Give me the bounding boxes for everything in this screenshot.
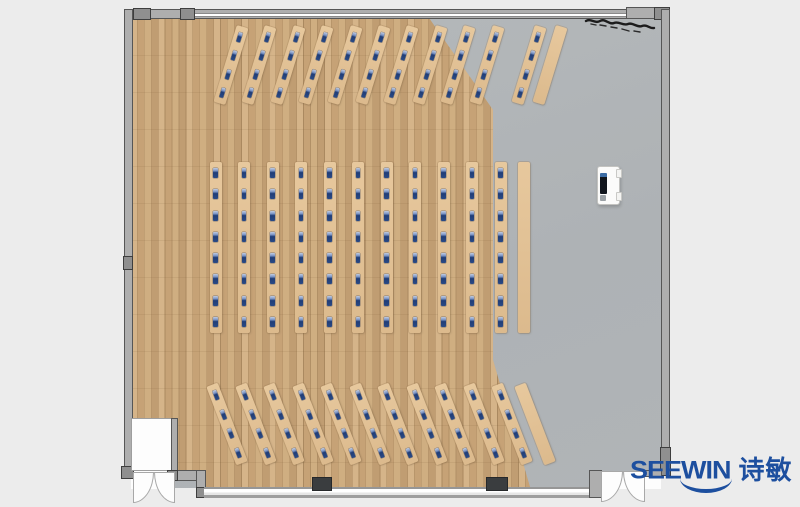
seat-indicator	[398, 428, 406, 439]
seat-indicator	[470, 168, 475, 178]
seat-indicator	[423, 69, 430, 80]
seat-indicator	[224, 69, 231, 80]
seat-indicator	[463, 32, 470, 43]
seat-indicator	[356, 253, 361, 263]
seat-indicator	[270, 168, 275, 178]
middle-straight-rows-desk	[238, 162, 250, 333]
lectern-screen	[600, 173, 607, 194]
seat-indicator	[413, 253, 418, 263]
seat-indicator	[384, 253, 389, 263]
seat-indicator	[441, 253, 446, 263]
seat-indicator	[327, 317, 332, 327]
seat-indicator	[338, 69, 345, 80]
middle-straight-rows-desk	[518, 162, 530, 333]
seat-indicator	[270, 253, 275, 263]
seat-indicator	[447, 409, 455, 420]
seat-indicator	[441, 211, 446, 221]
seat-indicator	[429, 50, 436, 61]
seat-indicator	[406, 32, 413, 43]
seat-indicator	[299, 274, 304, 284]
seat-indicator	[299, 296, 304, 306]
seat-indicator	[326, 390, 334, 401]
seat-indicator	[390, 409, 398, 420]
seat-indicator	[376, 448, 384, 459]
seat-indicator	[462, 448, 470, 459]
seat-indicator	[441, 232, 446, 242]
seat-indicator	[451, 69, 458, 80]
brand-watermark: SEEWIN诗敏	[630, 450, 793, 487]
seat-indicator	[498, 317, 503, 327]
seat-indicator	[270, 296, 275, 306]
seat-indicator	[413, 211, 418, 221]
seat-indicator	[299, 317, 304, 327]
seat-indicator	[519, 448, 527, 459]
seat-indicator	[242, 232, 247, 242]
seat-indicator	[284, 428, 292, 439]
middle-straight-rows-desk	[438, 162, 450, 333]
seat-indicator	[517, 87, 524, 98]
seat-indicator	[262, 448, 270, 459]
seat-indicator	[247, 87, 254, 98]
seat-indicator	[356, 317, 361, 327]
seat-indicator	[213, 232, 218, 242]
seat-indicator	[486, 50, 493, 61]
seat-indicator	[441, 317, 446, 327]
seat-indicator	[213, 211, 218, 221]
seat-indicator	[435, 32, 442, 43]
seat-indicator	[470, 189, 475, 199]
seat-indicator	[483, 428, 491, 439]
seat-indicator	[219, 87, 226, 98]
seat-indicator	[433, 448, 441, 459]
seat-indicator	[383, 390, 391, 401]
plant-scribble-icon	[583, 15, 657, 33]
seat-indicator	[270, 232, 275, 242]
middle-straight-rows-desk	[495, 162, 507, 333]
seat-indicator	[258, 50, 265, 61]
seat-indicator	[356, 274, 361, 284]
seat-indicator	[498, 296, 503, 306]
seat-indicator	[498, 211, 503, 221]
seat-indicator	[384, 232, 389, 242]
seat-indicator	[354, 390, 362, 401]
seat-indicator	[470, 317, 475, 327]
seat-indicator	[327, 168, 332, 178]
seat-indicator	[405, 448, 413, 459]
vestibule-wall	[171, 418, 178, 472]
seat-indicator	[299, 211, 304, 221]
seat-indicator	[512, 428, 520, 439]
middle-straight-rows-desk	[295, 162, 307, 333]
seat-indicator	[378, 32, 385, 43]
brand-name-cn: 诗敏	[739, 450, 793, 487]
seat-indicator	[498, 232, 503, 242]
middle-straight-rows-desk	[210, 162, 222, 333]
lectern-handle	[616, 192, 622, 201]
seat-indicator	[264, 32, 271, 43]
seat-indicator	[468, 390, 476, 401]
seat-indicator	[270, 211, 275, 221]
seat-indicator	[348, 448, 356, 459]
seat-indicator	[327, 232, 332, 242]
seat-indicator	[480, 69, 487, 80]
seat-indicator	[470, 274, 475, 284]
seat-indicator	[504, 409, 512, 420]
seat-indicator	[341, 428, 349, 439]
seat-indicator	[470, 232, 475, 242]
seat-indicator	[269, 390, 277, 401]
seat-indicator	[446, 87, 453, 98]
pillar	[312, 477, 332, 491]
lectern-handle	[616, 169, 622, 178]
seat-indicator	[356, 211, 361, 221]
wall-right	[661, 9, 670, 476]
seat-indicator	[394, 69, 401, 80]
seat-indicator	[327, 296, 332, 306]
wall-joint-top-mid	[180, 8, 195, 20]
seat-indicator	[384, 168, 389, 178]
seat-indicator	[242, 296, 247, 306]
seat-indicator	[242, 211, 247, 221]
seat-indicator	[475, 87, 482, 98]
seat-indicator	[441, 274, 446, 284]
seat-indicator	[498, 168, 503, 178]
seat-indicator	[299, 168, 304, 178]
middle-straight-rows-desk	[267, 162, 279, 333]
lectern-tray	[600, 195, 606, 201]
seat-indicator	[327, 189, 332, 199]
seat-indicator	[413, 296, 418, 306]
seat-indicator	[219, 409, 227, 420]
seat-indicator	[384, 189, 389, 199]
seat-indicator	[455, 428, 463, 439]
seat-indicator	[356, 168, 361, 178]
door-leaf	[154, 472, 175, 503]
seat-indicator	[384, 274, 389, 284]
seat-indicator	[281, 69, 288, 80]
seat-indicator	[384, 296, 389, 306]
door-leaf	[133, 472, 154, 503]
seat-indicator	[470, 253, 475, 263]
seat-indicator	[470, 296, 475, 306]
seat-indicator	[242, 274, 247, 284]
seat-indicator	[522, 69, 529, 80]
seat-indicator	[315, 50, 322, 61]
seat-indicator	[356, 296, 361, 306]
seat-indicator	[327, 274, 332, 284]
seat-indicator	[356, 232, 361, 242]
seat-indicator	[270, 317, 275, 327]
seat-indicator	[369, 428, 377, 439]
seat-indicator	[441, 296, 446, 306]
seat-indicator	[498, 274, 503, 284]
wall-joint-top-left	[133, 8, 151, 20]
seat-indicator	[534, 32, 541, 43]
seat-indicator	[236, 32, 243, 43]
wall-joint-left	[123, 256, 133, 270]
seat-indicator	[299, 189, 304, 199]
middle-straight-rows-desk	[381, 162, 393, 333]
seat-indicator	[213, 317, 218, 327]
seat-indicator	[327, 211, 332, 221]
seat-indicator	[498, 253, 503, 263]
seat-indicator	[213, 168, 218, 178]
seat-indicator	[492, 32, 499, 43]
seat-indicator	[389, 87, 396, 98]
seat-indicator	[248, 409, 256, 420]
seat-indicator	[212, 390, 220, 401]
seat-indicator	[321, 32, 328, 43]
seat-indicator	[270, 189, 275, 199]
seat-indicator	[426, 428, 434, 439]
seat-indicator	[356, 189, 361, 199]
wall-left	[124, 9, 133, 473]
pillar	[486, 477, 508, 491]
seat-indicator	[384, 317, 389, 327]
seat-indicator	[299, 232, 304, 242]
seat-indicator	[457, 50, 464, 61]
seat-indicator	[413, 317, 418, 327]
seat-indicator	[441, 189, 446, 199]
seat-indicator	[411, 390, 419, 401]
seat-indicator	[528, 50, 535, 61]
seat-indicator	[327, 253, 332, 263]
seat-indicator	[304, 87, 311, 98]
seat-indicator	[361, 87, 368, 98]
seat-indicator	[319, 448, 327, 459]
seat-indicator	[312, 428, 320, 439]
seat-indicator	[230, 50, 237, 61]
middle-straight-rows-desk	[352, 162, 364, 333]
seat-indicator	[490, 448, 498, 459]
window-wall-bottom	[204, 487, 596, 498]
seat-indicator	[413, 168, 418, 178]
brand-swoosh-icon	[680, 477, 732, 493]
seat-indicator	[213, 253, 218, 263]
seat-indicator	[413, 274, 418, 284]
seat-indicator	[384, 211, 389, 221]
middle-straight-rows-desk	[324, 162, 336, 333]
seat-indicator	[252, 69, 259, 80]
seat-indicator	[309, 69, 316, 80]
seat-indicator	[305, 409, 313, 420]
seat-indicator	[419, 409, 427, 420]
seat-indicator	[213, 296, 218, 306]
seat-indicator	[344, 50, 351, 61]
seat-indicator	[418, 87, 425, 98]
seat-indicator	[333, 409, 341, 420]
seat-indicator	[413, 189, 418, 199]
seat-indicator	[470, 211, 475, 221]
floor-plan: SEEWIN诗敏	[0, 0, 800, 507]
seat-indicator	[350, 32, 357, 43]
seat-indicator	[291, 448, 299, 459]
seat-indicator	[276, 87, 283, 98]
seat-indicator	[372, 50, 379, 61]
seat-indicator	[498, 189, 503, 199]
seat-indicator	[400, 50, 407, 61]
seat-indicator	[255, 428, 263, 439]
middle-straight-rows-desk	[466, 162, 478, 333]
lectern	[597, 166, 620, 205]
seat-indicator	[227, 428, 235, 439]
seat-indicator	[240, 390, 248, 401]
seat-indicator	[497, 390, 505, 401]
middle-straight-rows-desk	[409, 162, 421, 333]
seat-indicator	[270, 274, 275, 284]
seat-indicator	[242, 253, 247, 263]
seat-indicator	[362, 409, 370, 420]
seat-indicator	[366, 69, 373, 80]
seat-indicator	[297, 390, 305, 401]
seat-indicator	[440, 390, 448, 401]
seat-indicator	[413, 232, 418, 242]
entry-vestibule	[131, 418, 175, 471]
seat-indicator	[213, 274, 218, 284]
seat-indicator	[476, 409, 484, 420]
seat-indicator	[293, 32, 300, 43]
seat-indicator	[441, 168, 446, 178]
seat-indicator	[276, 409, 284, 420]
seat-indicator	[333, 87, 340, 98]
seat-indicator	[234, 448, 242, 459]
seat-indicator	[242, 168, 247, 178]
seat-indicator	[299, 253, 304, 263]
seat-indicator	[213, 189, 218, 199]
seat-indicator	[287, 50, 294, 61]
seat-indicator	[242, 317, 247, 327]
door-leaf	[601, 471, 623, 502]
seat-indicator	[242, 189, 247, 199]
